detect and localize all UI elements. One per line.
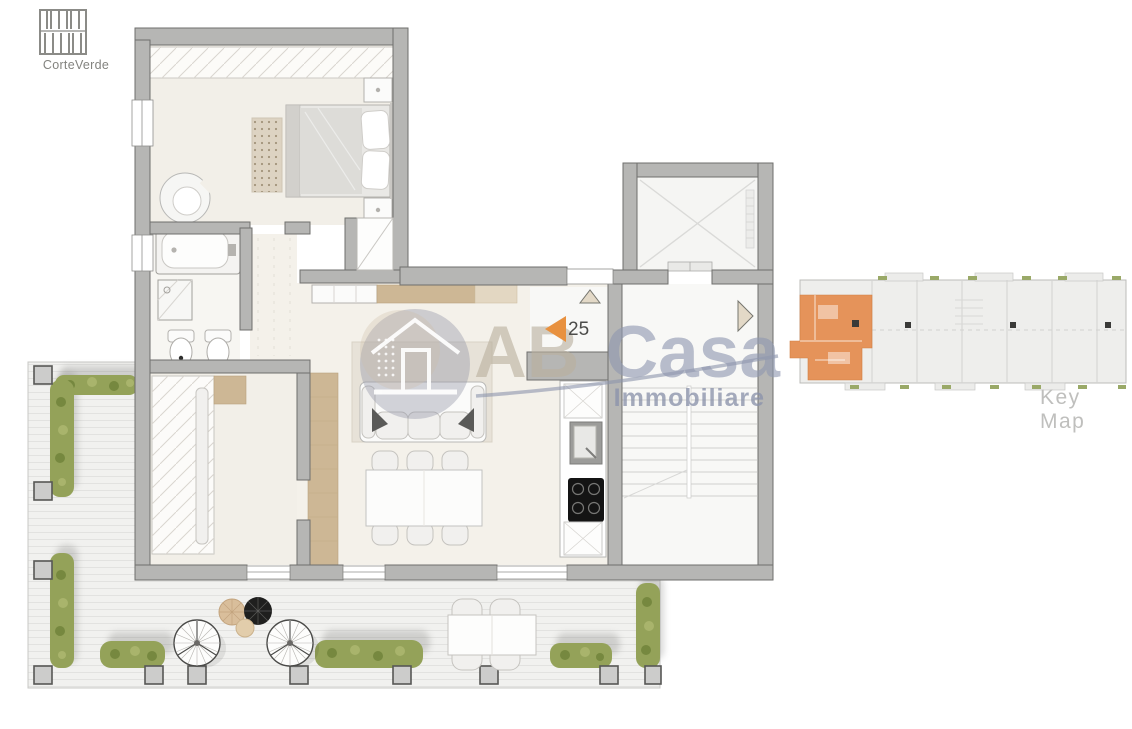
elevator <box>640 180 755 271</box>
bathroom <box>156 226 240 366</box>
rug <box>352 342 492 442</box>
walls <box>132 28 773 580</box>
wardrobe <box>150 47 393 78</box>
watermark-brand-second: Casa <box>605 312 780 393</box>
watermark-graphic <box>0 0 1132 729</box>
stairwell <box>622 301 757 498</box>
sofa <box>360 382 486 442</box>
bedroom <box>150 47 396 223</box>
logo-label: CorteVerde <box>38 58 114 72</box>
desk <box>214 376 246 404</box>
nightstand <box>364 198 392 222</box>
key-map <box>790 273 1126 390</box>
hedge-planter <box>50 375 660 668</box>
armchair <box>160 173 215 223</box>
house-in-circle-icon <box>360 309 470 419</box>
rug <box>252 118 282 192</box>
sideboard <box>377 285 475 303</box>
kitchen <box>560 381 606 557</box>
parasol-icon <box>174 620 226 668</box>
parasol-icon <box>267 620 319 668</box>
kitchen-counter <box>560 381 606 557</box>
keymap-greenery <box>850 276 1126 389</box>
highlighted-unit <box>790 295 872 380</box>
elevator-door <box>668 262 712 271</box>
nightstand <box>364 78 392 102</box>
entry-arrow-icon <box>540 310 580 350</box>
door-swing-icon <box>738 301 753 331</box>
hall-floor-lines <box>258 238 290 356</box>
key-map-label: Key Map <box>1040 386 1132 434</box>
terrace-posts <box>34 366 661 684</box>
watermark-brand-first: AB <box>474 312 579 393</box>
unit-number: 25 <box>568 319 589 341</box>
corteverde-logo: CorteVerde <box>38 8 114 72</box>
wardrobe <box>152 376 214 554</box>
floor-plan-drawing <box>0 0 1132 729</box>
watermark-subtitle: Immobiliare <box>613 384 765 413</box>
cooktop-icon <box>568 478 604 522</box>
watermark-brand: ABCasa <box>474 316 780 389</box>
dining-table <box>366 451 482 545</box>
cabinet <box>312 285 377 303</box>
double-bed <box>286 103 396 199</box>
outdoor-dining-table <box>448 599 536 670</box>
closet <box>357 218 393 270</box>
floor-plan-page: ABCasa Immobiliare 25 CorteVerde Key Map <box>0 0 1132 729</box>
door-swing-icon <box>580 290 600 303</box>
terrace <box>28 362 664 688</box>
sink <box>570 422 602 464</box>
living-room <box>308 285 517 565</box>
wood-floor-strip <box>308 373 338 565</box>
apartment-floors <box>150 45 758 565</box>
bathtub <box>156 226 240 274</box>
second-bedroom <box>152 376 246 554</box>
bidet <box>205 330 231 366</box>
watermark-swoosh <box>476 356 778 396</box>
building-facade-icon <box>38 8 88 56</box>
pouf-icons <box>219 597 272 637</box>
toilet <box>168 330 194 366</box>
shower <box>158 280 192 320</box>
windows <box>132 100 613 579</box>
